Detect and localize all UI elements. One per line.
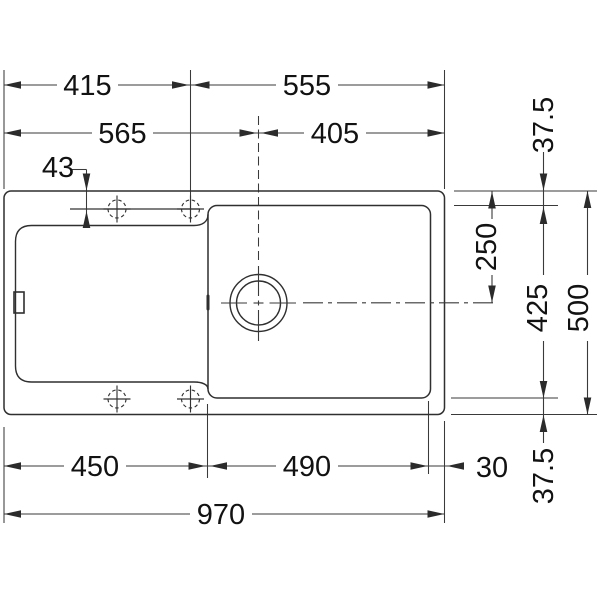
dim-label-500: 500 <box>563 284 595 332</box>
sink-dimension-drawing: 415 555 565 405 43 37.5 250 425 500 37.5… <box>0 0 600 600</box>
dim-label-425: 425 <box>522 284 554 332</box>
dim-label-43: 43 <box>42 152 74 184</box>
mounting-holes <box>70 196 204 413</box>
mounting-hole <box>104 386 131 413</box>
dim-label-250: 250 <box>471 223 503 271</box>
dim-label-565: 565 <box>98 118 146 150</box>
bowl-overflow-mark <box>207 295 210 311</box>
dim-label-970: 970 <box>197 499 245 531</box>
dim-label-490: 490 <box>283 451 331 483</box>
dimension-lines <box>4 85 588 514</box>
drainer-outline <box>16 215 209 390</box>
dim-label-30: 30 <box>476 452 508 484</box>
technical-drawing-page: 415 555 565 405 43 37.5 250 425 500 37.5… <box>0 0 600 600</box>
dim-label-37-5-top: 37.5 <box>528 97 560 153</box>
mounting-hole <box>177 196 204 223</box>
mounting-hole <box>104 196 131 223</box>
centerlines <box>221 266 497 341</box>
mounting-hole <box>177 386 204 413</box>
dim-label-415: 415 <box>63 70 111 102</box>
dim-label-405: 405 <box>311 118 359 150</box>
bowl-outline <box>208 206 431 399</box>
dim-label-450: 450 <box>71 451 119 483</box>
dim-label-555: 555 <box>283 70 331 102</box>
dim-label-37-5-bottom: 37.5 <box>528 448 560 504</box>
